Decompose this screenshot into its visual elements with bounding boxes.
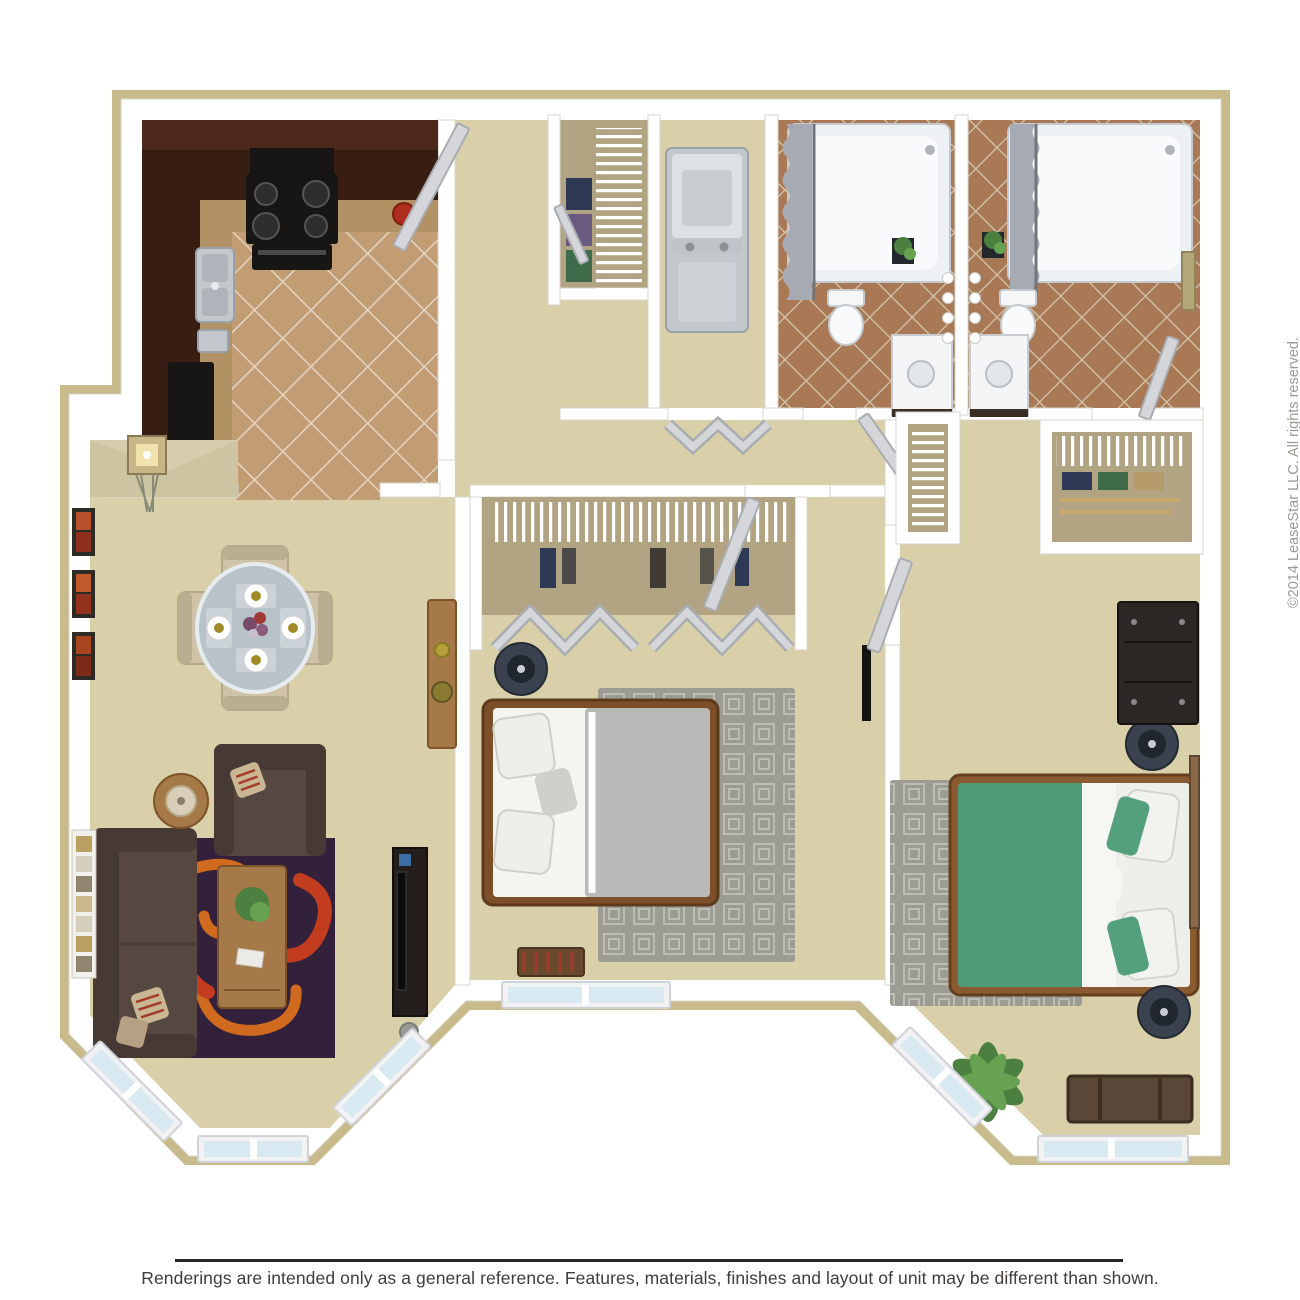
laundry-south-wall-left — [560, 408, 668, 420]
stove-burner — [255, 183, 277, 205]
wire-shelving — [1056, 436, 1188, 466]
kitchen-south-wall-right — [380, 483, 440, 497]
bath-2-south-wall-right — [1148, 408, 1203, 420]
wall-art — [1190, 756, 1199, 928]
nightstand-2a — [1126, 718, 1178, 770]
dresser — [1118, 602, 1198, 724]
tv-console — [393, 848, 427, 1041]
laundry-east-wall — [765, 115, 778, 420]
oven-handle — [258, 250, 326, 255]
shower-curtain — [783, 124, 813, 300]
laundry-west-wall — [648, 115, 660, 420]
sink-basin — [202, 288, 228, 316]
wire-shelving — [912, 430, 944, 526]
refrigerator — [168, 362, 214, 446]
side-table — [154, 774, 208, 828]
trunk — [1068, 1076, 1192, 1122]
vanity — [970, 335, 1028, 417]
towel — [1182, 252, 1195, 310]
bed-1 — [483, 700, 718, 905]
armchair — [214, 744, 326, 856]
lamp-top — [517, 665, 525, 673]
vanity-sink — [986, 361, 1012, 387]
sofa — [93, 828, 197, 1058]
bedroom-2-closet — [1040, 420, 1203, 554]
armchair-arm — [306, 744, 326, 856]
oven-front — [252, 244, 332, 270]
television — [397, 872, 406, 990]
folded-clothes — [1098, 472, 1128, 490]
bathrooms-shared-wall — [955, 115, 968, 415]
footer-disclaimer: Renderings are intended only as a genera… — [0, 1268, 1300, 1289]
armchair-arm — [214, 744, 234, 856]
washer-door — [678, 262, 736, 322]
kitchen-walkway-tile — [235, 483, 380, 500]
toaster — [198, 330, 228, 352]
range-hood — [250, 148, 334, 174]
stove-burner — [253, 213, 279, 239]
pillow — [492, 712, 556, 779]
console-table — [428, 600, 456, 748]
bottle — [435, 643, 449, 657]
sink-faucet — [211, 282, 219, 290]
lamp-top — [1148, 740, 1156, 748]
wall-art-set — [72, 508, 95, 680]
pendant-bulb — [143, 451, 151, 459]
copyright-watermark: ©2014 LeaseStar LLC. All rights reserved… — [1286, 308, 1300, 608]
console-decor — [399, 854, 411, 866]
squares-wall-art — [72, 830, 96, 978]
potted-plant-leaves — [250, 902, 270, 922]
dryer-door — [682, 170, 732, 226]
bath-1-south-wall-left — [763, 408, 803, 420]
bathtub-basin — [800, 136, 938, 270]
wire-shelving — [596, 128, 642, 292]
window-bay-center — [502, 982, 670, 1008]
nightstand-2b — [1138, 986, 1190, 1038]
magazine — [236, 948, 264, 967]
tub-faucet — [1165, 145, 1175, 155]
lamp-top — [1160, 1008, 1168, 1016]
bedroom-1-north-wall-left — [470, 485, 745, 497]
nightstand-1 — [495, 643, 547, 695]
window-left-wing-bottom — [198, 1136, 308, 1162]
hanging-clothes-blue — [566, 178, 592, 210]
stove-burner — [303, 181, 329, 207]
bathtub-basin — [1020, 136, 1180, 270]
kitchen-cabinet-highlight — [142, 120, 438, 150]
sofa-arm — [93, 828, 197, 852]
lamp-finial — [177, 797, 185, 805]
closet-east-wall — [795, 497, 807, 650]
closet-west-wall — [470, 497, 482, 650]
floor-plan-page: Renderings are intended only as a genera… — [0, 0, 1300, 1300]
vanity — [892, 335, 952, 417]
control-knob — [686, 243, 695, 252]
bedroom-1-north-wall-right — [830, 485, 885, 497]
bed-2 — [950, 775, 1198, 995]
stove-burner — [305, 215, 327, 237]
tub-faucet — [925, 145, 935, 155]
window-right-wing-bottom — [1038, 1136, 1188, 1162]
sink-basin — [202, 254, 228, 282]
vase — [432, 682, 452, 702]
control-panel — [672, 240, 742, 254]
footer-divider — [175, 1259, 1123, 1262]
vanity-sink — [908, 361, 934, 387]
control-knob — [720, 243, 729, 252]
vanity-base — [970, 409, 1028, 417]
toilet — [828, 290, 864, 345]
kitchen-sink — [196, 248, 234, 322]
small-pillow — [1101, 867, 1123, 900]
coffee-table — [218, 866, 286, 1008]
linen-closet — [896, 412, 960, 544]
storage-bench — [518, 948, 584, 976]
bath-plant — [892, 237, 916, 264]
bath-plant — [982, 231, 1006, 258]
folded-clothes — [1062, 472, 1092, 490]
folded-clothes — [1134, 472, 1164, 490]
green-duvet — [958, 783, 1088, 987]
living-bedroom1-wall — [455, 497, 470, 985]
gray-duvet — [585, 708, 710, 897]
pillow — [493, 809, 555, 875]
sofa-back — [93, 828, 119, 1058]
floor-plan-rendering — [0, 0, 1300, 1300]
wall-tv — [862, 645, 871, 721]
